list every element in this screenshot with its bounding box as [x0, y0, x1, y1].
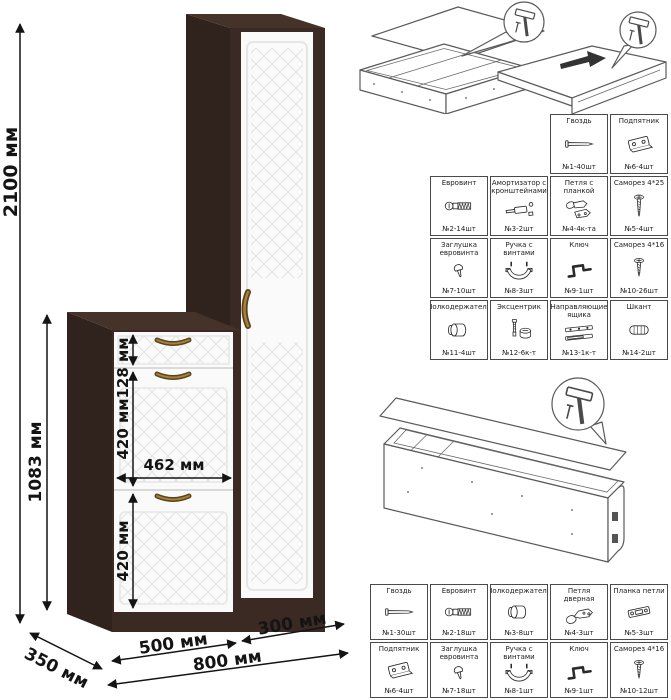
dimension-label: 350 мм: [21, 644, 92, 693]
part-name: Евровинт: [441, 177, 478, 187]
hinge-with-plate-icon: [558, 195, 600, 225]
flap2-front: [120, 496, 227, 604]
part-cell: Ключ№9-1шт: [550, 642, 608, 698]
part-cell: Заглушка евровинта№7-18шт: [430, 642, 488, 698]
part-cell: Направляющие ящика№13-1к-т: [550, 300, 608, 360]
shelf-support-icon: [498, 595, 540, 629]
part-name: Направляющие ящика: [550, 301, 608, 319]
part-name: Полкодержатель: [430, 301, 488, 311]
drawer-front: [118, 336, 229, 364]
part-name: Заглушка евровинта: [431, 239, 487, 257]
screw-short-icon: [618, 653, 660, 687]
handle-with-screws-icon: [498, 257, 540, 287]
part-name: Саморез 4*16: [613, 239, 665, 249]
part-qty: №4-4к-та: [562, 225, 596, 235]
part-name: Гвоздь: [565, 115, 592, 125]
confirmat-icon: [438, 187, 480, 225]
part-name: Гвоздь: [385, 585, 412, 595]
part-qty: №13-1к-т: [562, 349, 596, 359]
assembly-instruction-sheet: 2100 мм 1083 мм 128 мм 420 мм 462 мм 420…: [0, 0, 671, 700]
part-cell: Евровинт№2-18шт: [430, 584, 488, 640]
screw-long-icon: [618, 187, 660, 225]
cap-icon: [438, 257, 480, 287]
part-qty: №1-30шт: [382, 629, 416, 639]
dimension-label: 1083 мм: [26, 421, 46, 502]
dimension-label: 2100 мм: [0, 127, 22, 218]
part-qty: №4-3шт: [564, 629, 593, 639]
part-qty: №7-18шт: [442, 687, 476, 697]
part-qty: №12-6к-т: [502, 349, 536, 359]
gas-lift-icon: [498, 195, 540, 225]
glide-plate-icon: [618, 125, 660, 163]
part-cell: Подпятник№6-4шт: [370, 642, 428, 698]
shoe-cabinet-side: [67, 312, 112, 632]
parts-table-top: Гвоздь№1-40штПодпятник№6-4штЕвровинт№2-1…: [430, 114, 668, 362]
part-qty: №10-26шт: [620, 287, 658, 297]
part-cell: Эксцентрик№12-6к-т: [490, 300, 548, 360]
part-cell: Полкодержатель№3-8шт: [490, 584, 548, 640]
part-name: Заглушка евровинта: [431, 643, 487, 661]
confirmat-icon: [438, 595, 480, 629]
glide-plate-icon: [378, 653, 420, 687]
cap-icon: [438, 661, 480, 687]
part-name: Ключ: [568, 239, 589, 249]
part-name: Ключ: [568, 643, 589, 653]
parts-row: Гвоздь№1-40штПодпятник№6-4шт: [430, 114, 668, 174]
part-name: Подпятник: [378, 643, 421, 653]
dimension-depth: 350 мм: [21, 633, 102, 693]
part-qty: №6-4шт: [384, 687, 413, 697]
part-cell: Планка петли№5-3шт: [610, 584, 668, 640]
part-qty: №6-4шт: [624, 163, 653, 173]
part-name: Амортизатор с кронштейнами: [490, 177, 548, 195]
part-name: Планка петли: [612, 585, 665, 595]
drawer-slides-icon: [558, 319, 600, 349]
part-cell: Амортизатор с кронштейнами№3-2шт: [490, 176, 548, 236]
hex-key-icon: [558, 653, 600, 687]
part-name: Саморез 4*16: [613, 643, 665, 653]
handle-with-screws-icon: [498, 661, 540, 687]
dimension-label: 800 мм: [192, 647, 263, 676]
door-handle: [245, 292, 249, 326]
part-name: Подпятник: [618, 115, 661, 125]
part-cell: Шкант№14-2шт: [610, 300, 668, 360]
door-hinge-icon: [558, 603, 600, 629]
hex-key-icon: [558, 249, 600, 287]
dowel-icon: [618, 311, 660, 349]
parts-row: Полкодержатель№11-4штЭксцентрик№12-6к-тН…: [430, 300, 668, 360]
part-qty: №8-1шт: [504, 687, 533, 697]
dimension-label: 420 мм: [114, 520, 132, 581]
part-name: Ручка с винтами: [491, 239, 547, 257]
part-name: Саморез 4*25: [613, 177, 665, 187]
dimension-total-height: 2100 мм: [0, 24, 22, 623]
furniture-drawing: 2100 мм 1083 мм 128 мм 420 мм 462 мм 420…: [0, 0, 360, 700]
part-cell: Ключ№9-1шт: [550, 238, 608, 298]
nail-icon: [558, 125, 600, 163]
carcass-right-end: [608, 486, 624, 562]
part-cell: Петля с планкой№4-4к-та: [550, 176, 608, 236]
part-qty: №3-8шт: [504, 629, 533, 639]
cam-lock-icon: [498, 311, 540, 349]
part-name: Петля с планкой: [551, 177, 607, 195]
part-name: Евровинт: [441, 585, 478, 595]
part-cell: Гвоздь№1-40шт: [550, 114, 608, 174]
dimension-label: 462 мм: [143, 456, 204, 474]
part-qty: №1-40шт: [562, 163, 596, 173]
dimension-label: 128 мм: [114, 337, 132, 398]
hinge-plate-icon: [618, 595, 660, 629]
parts-row: Евровинт№2-14штАмортизатор с кронштейнам…: [430, 176, 668, 236]
part-cell: Полкодержатель№11-4шт: [430, 300, 488, 360]
assembly-diagram-back-panel: [362, 362, 664, 578]
dimension-drawer-height: 128 мм: [114, 335, 133, 399]
part-cell: Саморез 4*16№10-12шт: [610, 642, 668, 698]
part-qty: №11-4шт: [442, 349, 476, 359]
parts-row: Подпятник№6-4штЗаглушка евровинта№7-18шт…: [370, 642, 668, 698]
hinge-mark: [612, 512, 618, 521]
part-cell: Петля дверная№4-3шт: [550, 584, 608, 640]
parts-table-bottom: Гвоздь№1-30штЕвровинт№2-18штПолкодержате…: [370, 584, 668, 700]
nail-icon: [378, 595, 420, 629]
part-name: Эксцентрик: [496, 301, 542, 311]
part-qty: №2-18шт: [442, 629, 476, 639]
part-cell: Гвоздь№1-30шт: [370, 584, 428, 640]
shelf-support-icon: [438, 311, 480, 349]
parts-row: Гвоздь№1-30штЕвровинт№2-18штПолкодержате…: [370, 584, 668, 640]
part-cell: Ручка с винтами№8-1шт: [490, 642, 548, 698]
part-qty: №14-2шт: [622, 349, 656, 359]
hinge-mark: [612, 534, 618, 543]
part-qty: №10-12шт: [620, 687, 658, 697]
part-name: Полкодержатель: [490, 585, 548, 595]
part-name: Шкант: [626, 301, 653, 311]
parts-row: Заглушка евровинта№7-10штРучка с винтами…: [430, 238, 668, 298]
part-qty: №5-4шт: [624, 225, 653, 235]
part-qty: №9-1шт: [564, 287, 593, 297]
part-name: Петля дверная: [551, 585, 607, 603]
screw-short-icon: [618, 249, 660, 287]
part-qty: №9-1шт: [564, 687, 593, 697]
part-qty: №8-3шт: [504, 287, 533, 297]
callout-hammer-balloon: [552, 378, 606, 444]
part-cell: Саморез 4*25№5-4шт: [610, 176, 668, 236]
part-qty: №3-2шт: [504, 225, 533, 235]
assembly-diagram-drawer: [494, 6, 671, 114]
part-qty: №5-3шт: [624, 629, 653, 639]
dimension-cabinet-height: 1083 мм: [26, 315, 47, 610]
part-name: Ручка с винтами: [491, 643, 547, 661]
part-qty: №2-14шт: [442, 225, 476, 235]
part-cell: Заглушка евровинта№7-10шт: [430, 238, 488, 298]
part-cell: Ручка с винтами№8-3шт: [490, 238, 548, 298]
part-qty: №7-10шт: [442, 287, 476, 297]
part-cell: Евровинт№2-14шт: [430, 176, 488, 236]
part-cell: Подпятник№6-4шт: [610, 114, 668, 174]
dimension-label: 420 мм: [114, 398, 132, 459]
part-cell: Саморез 4*16№10-26шт: [610, 238, 668, 298]
